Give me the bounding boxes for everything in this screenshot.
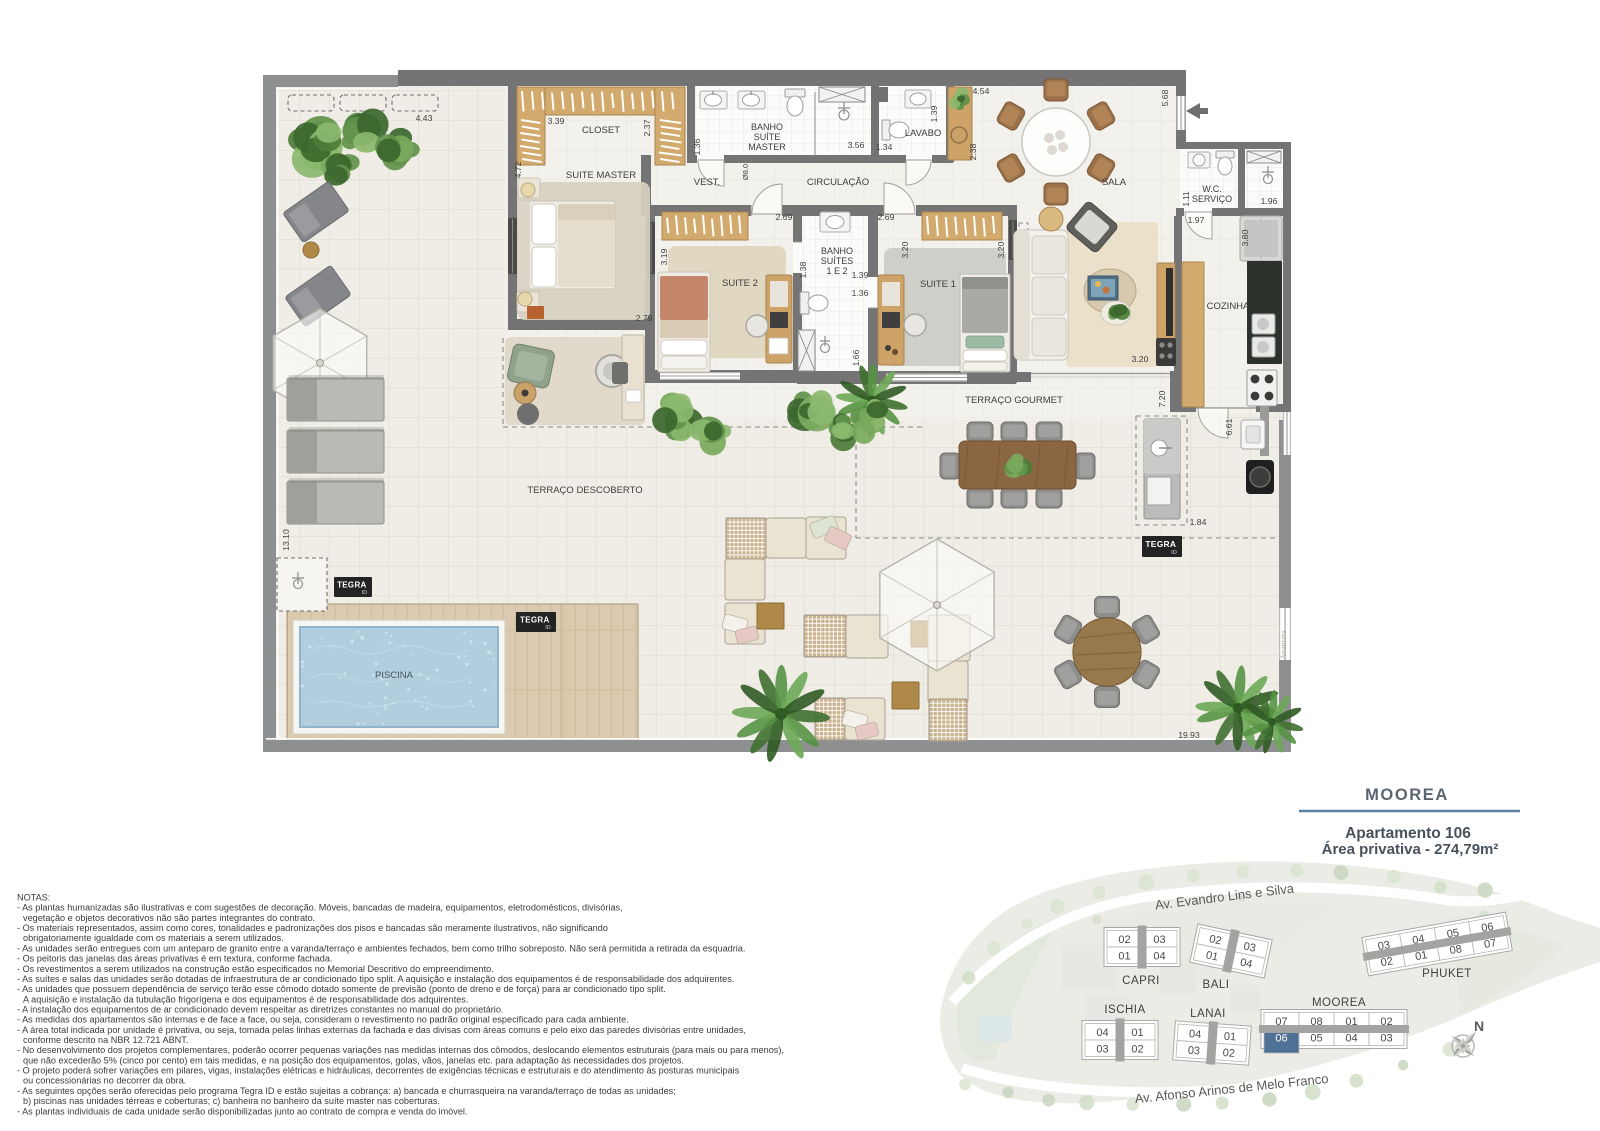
svg-text:5.68: 5.68 xyxy=(1160,89,1170,106)
svg-text:05: 05 xyxy=(1310,1032,1322,1044)
svg-text:SERVIÇO: SERVIÇO xyxy=(1192,194,1232,204)
svg-text:SUITE MASTER: SUITE MASTER xyxy=(566,170,636,181)
svg-text:1.36: 1.36 xyxy=(692,138,702,155)
svg-text:1.84: 1.84 xyxy=(1190,517,1207,527)
svg-text:1.38: 1.38 xyxy=(798,261,808,278)
svg-text:TERRAÇO GOURMET: TERRAÇO GOURMET xyxy=(965,395,1063,406)
svg-text:3.20: 3.20 xyxy=(1132,354,1149,364)
svg-text:- As unidades que possuem depe: - As unidades que possuem dependência de… xyxy=(17,984,666,994)
svg-text:- As plantas humanizadas são i: - As plantas humanizadas são ilustrativa… xyxy=(17,903,623,913)
svg-text:1 E 2: 1 E 2 xyxy=(826,266,847,276)
svg-text:MOOREA: MOOREA xyxy=(1365,786,1449,804)
svg-text:Anantara: Anantara xyxy=(1279,630,1288,660)
svg-text:04: 04 xyxy=(1096,1027,1108,1039)
svg-text:4.72: 4.72 xyxy=(513,161,523,178)
svg-text:02: 02 xyxy=(1208,933,1222,947)
svg-text:3.80: 3.80 xyxy=(1240,229,1250,246)
svg-text:01: 01 xyxy=(1223,1031,1236,1044)
svg-text:W.C.: W.C. xyxy=(1202,184,1222,194)
svg-text:02: 02 xyxy=(1118,934,1130,946)
svg-text:1.96: 1.96 xyxy=(1261,196,1278,206)
svg-text:3.56: 3.56 xyxy=(848,140,865,150)
svg-text:2.79: 2.79 xyxy=(636,313,653,323)
svg-text:1.66: 1.66 xyxy=(851,349,861,366)
svg-text:03: 03 xyxy=(1153,934,1165,946)
svg-text:1.34: 1.34 xyxy=(876,142,893,152)
svg-text:- Os peitoris das janelas das: - Os peitoris das janelas das áreas priv… xyxy=(17,954,332,964)
svg-text:LANAI: LANAI xyxy=(1190,1008,1226,1020)
svg-text:04: 04 xyxy=(1345,1032,1357,1044)
svg-text:SUÍTE: SUÍTE xyxy=(754,132,781,142)
svg-text:ID: ID xyxy=(545,625,551,631)
svg-text:04: 04 xyxy=(1239,957,1253,971)
svg-text:BANHO: BANHO xyxy=(821,246,853,256)
svg-text:A aquisição e instalação da tu: A aquisição e instalação da tubulação fr… xyxy=(23,994,468,1004)
svg-text:- As plantas individuais de ca: - As plantas individuais de cada unidade… xyxy=(17,1106,467,1116)
svg-text:2.37: 2.37 xyxy=(642,119,652,136)
svg-text:- As seguintes opções serão of: - As seguintes opções serão oferecidas p… xyxy=(17,1086,676,1096)
svg-text:N: N xyxy=(1474,1018,1484,1034)
svg-text:2.69: 2.69 xyxy=(878,212,895,222)
svg-text:03: 03 xyxy=(1242,940,1256,954)
svg-text:- O projeto poderá sofrer vari: - O projeto poderá sofrer variações em p… xyxy=(17,1066,740,1076)
svg-text:MOOREA: MOOREA xyxy=(1312,997,1366,1009)
svg-text:- A área total indicada por un: - A área total indicada por unidade é pr… xyxy=(17,1025,746,1035)
svg-text:vegetação e objetos decorativo: vegetação e objetos decorativos não são … xyxy=(23,913,315,923)
svg-text:- Os revestimentos a serem uti: - Os revestimentos a serem utilizados na… xyxy=(17,964,494,974)
svg-text:4.43: 4.43 xyxy=(416,113,433,123)
svg-text:obrigatoriamente igualdade com: obrigatoriamente igualdade com os materi… xyxy=(23,933,284,943)
svg-text:Área privativa - 274,79m²: Área privativa - 274,79m² xyxy=(1322,841,1499,858)
svg-text:BALI: BALI xyxy=(1203,979,1230,991)
svg-text:TEGRA: TEGRA xyxy=(1145,539,1176,549)
svg-text:NOTAS:: NOTAS: xyxy=(17,893,50,903)
svg-text:01: 01 xyxy=(1131,1027,1143,1039)
svg-text:3.19: 3.19 xyxy=(659,248,669,265)
svg-text:3.20: 3.20 xyxy=(900,241,910,258)
svg-text:- No desenvolvimento dos proje: - No desenvolvimento dos projetos comple… xyxy=(17,1045,784,1055)
svg-text:BANHO: BANHO xyxy=(751,122,783,132)
svg-text:19.93: 19.93 xyxy=(1178,730,1200,740)
svg-text:que não excederão 5% (cinco po: que não excederão 5% (cinco por cento) e… xyxy=(23,1055,684,1065)
svg-text:CLOSET: CLOSET xyxy=(582,125,620,136)
svg-text:Ø8.0: Ø8.0 xyxy=(741,164,750,180)
svg-text:06: 06 xyxy=(1275,1032,1287,1044)
svg-text:2.69: 2.69 xyxy=(776,212,793,222)
svg-text:03: 03 xyxy=(1096,1043,1108,1055)
svg-text:ISCHIA: ISCHIA xyxy=(1104,1004,1145,1016)
svg-text:SUITE 2: SUITE 2 xyxy=(722,278,758,289)
svg-text:SUÍTES: SUÍTES xyxy=(821,256,854,266)
svg-text:PISCINA: PISCINA xyxy=(375,670,414,681)
svg-text:4.54: 4.54 xyxy=(973,86,990,96)
svg-text:- As medidas dos apartamentos: - As medidas dos apartamentos são intern… xyxy=(17,1015,629,1025)
svg-text:CIRCULAÇÃO: CIRCULAÇÃO xyxy=(807,177,869,188)
svg-text:- Os materiais representados,: - Os materiais representados, assim como… xyxy=(17,923,608,933)
svg-text:- A instalação dos equipamento: - A instalação dos equipamentos de ar co… xyxy=(17,1004,503,1014)
svg-text:b) piscinas nas unidades térre: b) piscinas nas unidades térreas e cober… xyxy=(23,1096,440,1106)
svg-text:ou concessionárias no decorrer: ou concessionárias no decorrer da obra. xyxy=(23,1076,186,1086)
svg-text:TEGRA: TEGRA xyxy=(337,580,367,589)
svg-text:1.11: 1.11 xyxy=(1182,191,1191,207)
svg-text:1.36: 1.36 xyxy=(852,288,869,298)
svg-text:02: 02 xyxy=(1222,1047,1235,1060)
svg-text:LAVABO: LAVABO xyxy=(905,128,942,139)
svg-text:3.20: 3.20 xyxy=(996,241,1006,258)
svg-text:6.61: 6.61 xyxy=(1224,418,1234,435)
svg-text:SUITE 1: SUITE 1 xyxy=(920,279,956,290)
svg-text:04: 04 xyxy=(1189,1028,1202,1041)
svg-text:04: 04 xyxy=(1153,950,1165,962)
svg-text:SALA: SALA xyxy=(1102,177,1127,188)
svg-text:01: 01 xyxy=(1118,950,1130,962)
svg-text:13.10: 13.10 xyxy=(281,529,291,551)
svg-text:- As unidades serão entregues: - As unidades serão entregues com um ant… xyxy=(17,943,745,953)
svg-text:conforme descrito na NBR 12.72: conforme descrito na NBR 12.721 ABNT. xyxy=(23,1035,188,1045)
svg-text:TEGRA: TEGRA xyxy=(520,615,550,624)
svg-text:Apartamento 106: Apartamento 106 xyxy=(1345,825,1471,842)
svg-text:7.20: 7.20 xyxy=(1157,390,1167,407)
svg-text:2.38: 2.38 xyxy=(968,143,978,160)
svg-text:PHUKET: PHUKET xyxy=(1422,968,1472,980)
svg-text:ID: ID xyxy=(362,590,368,596)
svg-text:1.39: 1.39 xyxy=(852,270,869,280)
svg-text:CAPRI: CAPRI xyxy=(1122,975,1160,987)
svg-text:1.97: 1.97 xyxy=(1188,215,1205,225)
svg-text:1.39: 1.39 xyxy=(929,105,939,122)
svg-text:VEST.: VEST. xyxy=(694,177,720,188)
svg-text:01: 01 xyxy=(1205,949,1219,963)
svg-text:TERRAÇO DESCOBERTO: TERRAÇO DESCOBERTO xyxy=(527,485,642,496)
svg-text:03: 03 xyxy=(1380,1032,1392,1044)
svg-text:MASTER: MASTER xyxy=(748,142,786,152)
svg-text:COZINHA: COZINHA xyxy=(1207,301,1250,312)
svg-text:03: 03 xyxy=(1187,1045,1200,1058)
svg-text:02: 02 xyxy=(1131,1043,1143,1055)
svg-text:3.39: 3.39 xyxy=(548,116,565,126)
svg-text:- As suítes e salas das unidad: - As suítes e salas das unidades serão d… xyxy=(17,974,734,984)
svg-text:ID: ID xyxy=(1171,550,1177,556)
